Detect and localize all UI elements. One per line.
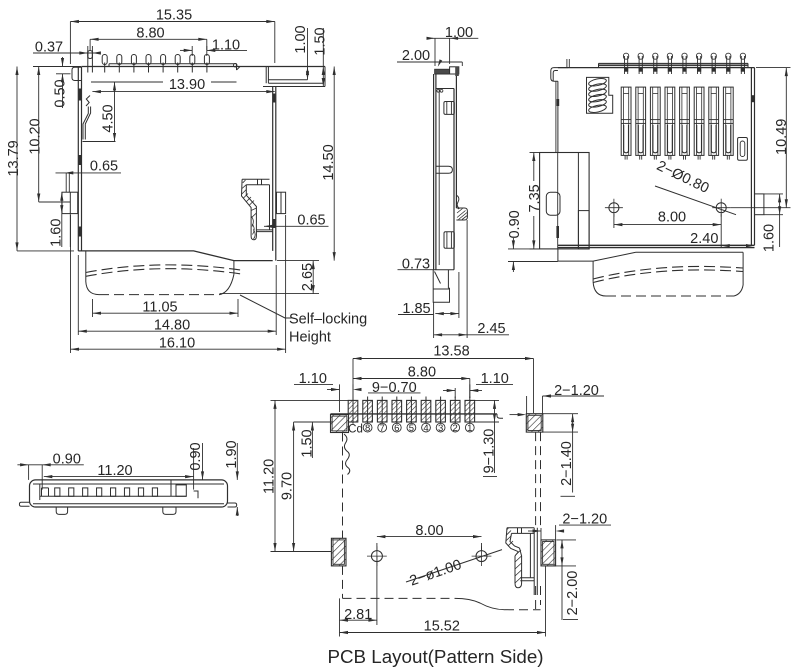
svg-text:13.79: 13.79 <box>6 140 22 176</box>
svg-text:14.50: 14.50 <box>321 144 337 180</box>
svg-text:10.20: 10.20 <box>27 118 43 154</box>
svg-text:Self–locking: Self–locking <box>289 311 367 327</box>
svg-text:0.65: 0.65 <box>90 158 118 174</box>
svg-text:9−1.30: 9−1.30 <box>482 429 498 474</box>
svg-text:5: 5 <box>409 423 414 434</box>
svg-text:PCB Layout(Pattern Side): PCB Layout(Pattern Side) <box>327 646 543 667</box>
svg-text:4: 4 <box>423 423 428 434</box>
svg-text:1: 1 <box>467 423 472 434</box>
svg-text:8.00: 8.00 <box>658 209 686 225</box>
svg-text:1.50: 1.50 <box>313 27 329 55</box>
svg-text:7.35: 7.35 <box>527 184 543 212</box>
svg-text:1.00: 1.00 <box>293 25 309 53</box>
svg-text:0.90: 0.90 <box>188 442 204 470</box>
svg-text:0.90: 0.90 <box>507 210 523 238</box>
svg-text:1.90: 1.90 <box>224 440 240 468</box>
svg-text:7: 7 <box>380 423 385 434</box>
svg-text:13.90: 13.90 <box>169 77 205 93</box>
svg-text:Cd: Cd <box>348 423 363 435</box>
svg-text:1.60: 1.60 <box>762 224 778 252</box>
svg-text:13.58: 13.58 <box>433 344 469 360</box>
svg-text:15.35: 15.35 <box>156 7 192 23</box>
svg-text:2: 2 <box>453 423 458 434</box>
svg-text:Height: Height <box>289 330 331 346</box>
svg-text:10.49: 10.49 <box>774 119 790 155</box>
svg-text:1.50: 1.50 <box>300 429 316 457</box>
svg-text:9−0.70: 9−0.70 <box>372 380 417 396</box>
svg-text:2−2.00: 2−2.00 <box>565 571 581 616</box>
svg-text:1.10: 1.10 <box>212 37 240 53</box>
svg-text:2.40: 2.40 <box>690 231 718 247</box>
svg-text:8: 8 <box>365 423 370 434</box>
svg-text:0.50: 0.50 <box>53 79 69 107</box>
svg-text:3: 3 <box>438 423 443 434</box>
svg-text:6: 6 <box>394 423 399 434</box>
